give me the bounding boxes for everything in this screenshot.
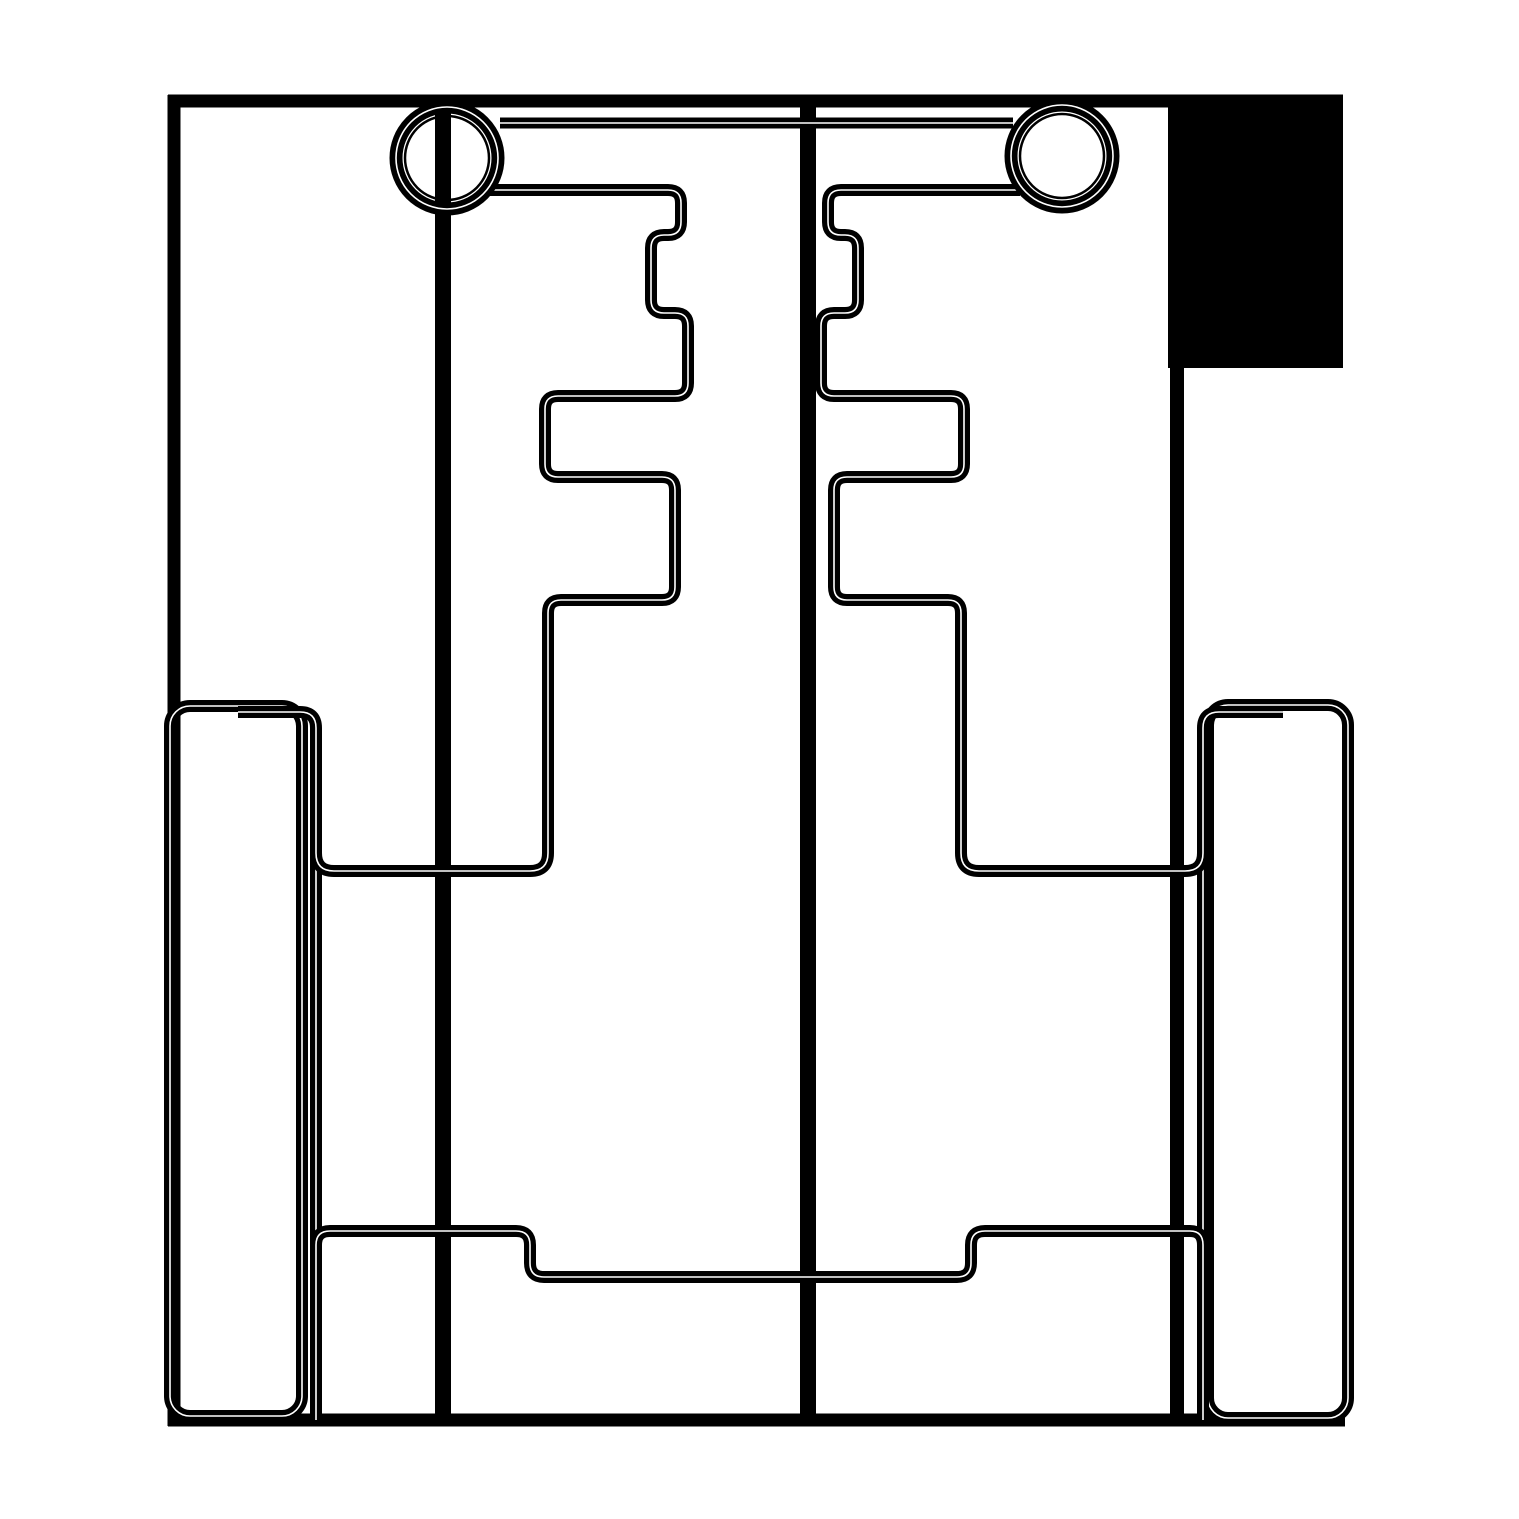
line-drawing (0, 0, 1519, 1519)
stepped-profile-right-seam (821, 190, 1203, 871)
side-seam-right (1203, 712, 1283, 1420)
stepped-profile-right (821, 190, 1203, 871)
shapes-layer (168, 95, 1348, 1426)
stepped-profile-left (316, 190, 688, 871)
grommet-right-ring-seam (1011, 105, 1113, 207)
side-seam-right-seam (1203, 712, 1283, 1420)
grommet-right-inner (1020, 114, 1104, 198)
rail-left (170, 706, 302, 1416)
pattern-drawing-canvas (0, 0, 1519, 1519)
stepped-profile-left-seam (316, 190, 688, 871)
rail-right-seam (1208, 705, 1348, 1418)
rail-left-seam (170, 706, 302, 1416)
corner-block (1168, 95, 1343, 368)
rail-right (1208, 705, 1348, 1418)
